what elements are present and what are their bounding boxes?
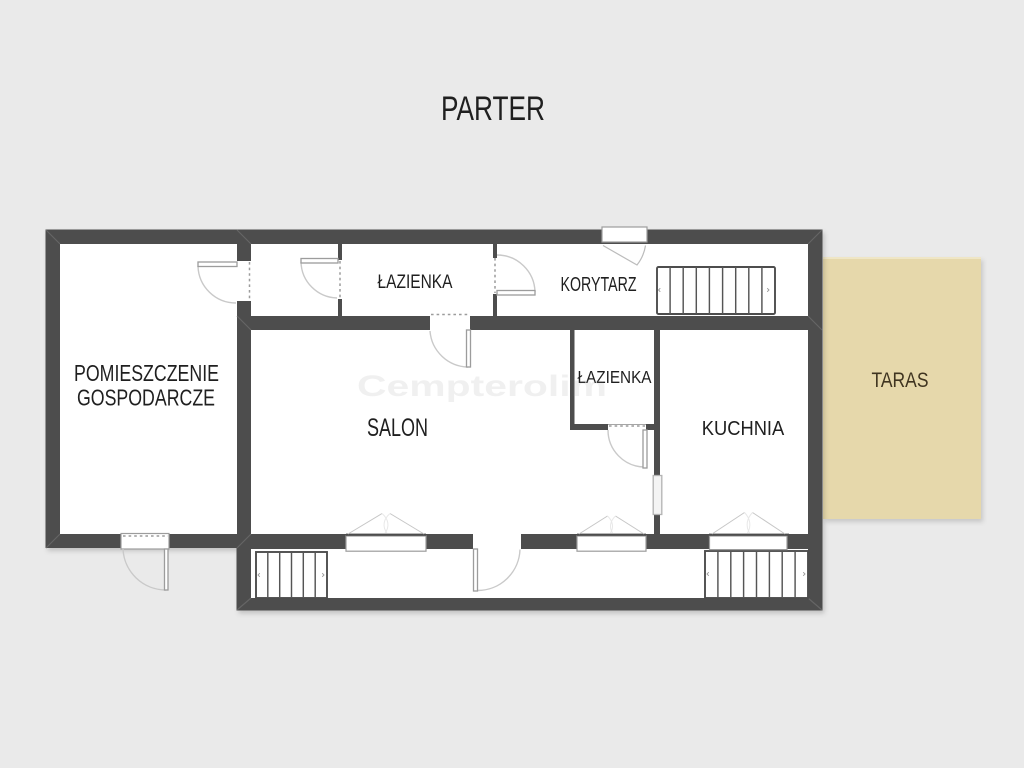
svg-text:GOSPODARCZE: GOSPODARCZE — [77, 385, 215, 411]
svg-text:SALON: SALON — [367, 414, 428, 442]
svg-text:KORYTARZ: KORYTARZ — [561, 274, 637, 296]
svg-text:KUCHNIA: KUCHNIA — [702, 418, 785, 440]
svg-text:PARTER: PARTER — [441, 90, 545, 128]
svg-text:ŁAZIENKA: ŁAZIENKA — [378, 272, 453, 293]
svg-text:POMIESZCZENIE: POMIESZCZENIE — [74, 360, 219, 386]
svg-text:Cempterolim: Cempterolim — [357, 370, 607, 403]
svg-text:TARAS: TARAS — [872, 369, 929, 392]
